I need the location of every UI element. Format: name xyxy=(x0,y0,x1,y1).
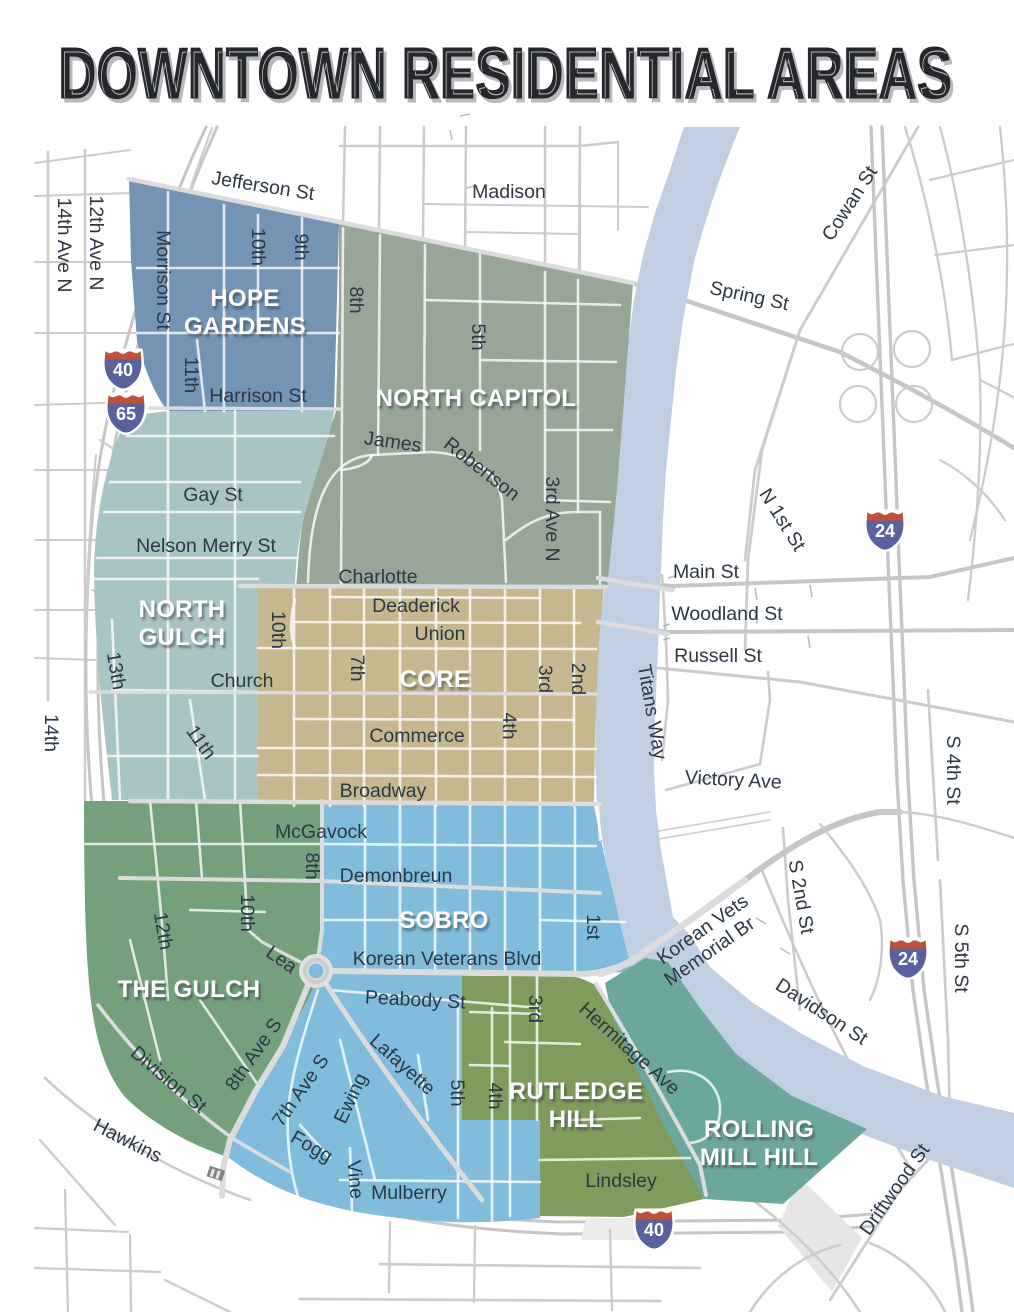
svg-text:DOWNTOWN RESIDENTIAL AREAS: DOWNTOWN RESIDENTIAL AREAS xyxy=(58,34,952,114)
svg-text:Church: Church xyxy=(211,670,274,692)
svg-text:CORE: CORE xyxy=(400,666,471,693)
svg-text:RUTLEDGE: RUTLEDGE xyxy=(509,1078,643,1105)
svg-text:5th: 5th xyxy=(467,323,489,350)
svg-text:Nelson Merry St: Nelson Merry St xyxy=(136,535,276,557)
svg-text:4th: 4th xyxy=(498,712,520,739)
svg-text:4th: 4th xyxy=(484,1082,506,1109)
svg-text:8th: 8th xyxy=(345,286,367,313)
svg-text:Main St: Main St xyxy=(673,561,740,583)
svg-text:10th: 10th xyxy=(236,894,258,932)
svg-text:3rd: 3rd xyxy=(524,995,546,1023)
svg-text:9th: 9th xyxy=(290,233,312,260)
svg-text:2nd: 2nd xyxy=(567,663,589,696)
svg-text:Charlotte: Charlotte xyxy=(338,566,417,588)
svg-text:Demonbreun: Demonbreun xyxy=(340,865,453,887)
svg-text:HILL: HILL xyxy=(549,1106,604,1133)
svg-text:5th: 5th xyxy=(446,1079,468,1106)
svg-text:Harrison St: Harrison St xyxy=(209,385,307,407)
svg-text:Madison: Madison xyxy=(472,181,546,203)
svg-text:Deaderick: Deaderick xyxy=(372,595,460,617)
svg-text:24: 24 xyxy=(898,949,918,969)
svg-text:GARDENS: GARDENS xyxy=(184,313,306,340)
svg-text:40: 40 xyxy=(113,360,133,380)
svg-text:7th: 7th xyxy=(346,654,368,681)
svg-text:12th Ave N: 12th Ave N xyxy=(85,195,107,290)
svg-text:THE GULCH: THE GULCH xyxy=(118,976,261,1003)
svg-text:3rd: 3rd xyxy=(534,665,556,693)
svg-text:NORTH: NORTH xyxy=(139,596,226,623)
svg-text:Vine: Vine xyxy=(342,1159,367,1199)
svg-text:Korean Veterans Blvd: Korean Veterans Blvd xyxy=(353,948,542,970)
svg-text:GULCH: GULCH xyxy=(139,624,226,651)
svg-text:Gay St: Gay St xyxy=(183,484,243,506)
svg-text:ROLLING: ROLLING xyxy=(704,1116,814,1143)
svg-text:Woodland St: Woodland St xyxy=(671,603,783,625)
svg-text:HOPE: HOPE xyxy=(210,285,279,312)
svg-text:S 5th St: S 5th St xyxy=(950,923,972,993)
svg-text:Russell St: Russell St xyxy=(674,645,762,667)
svg-text:MILL HILL: MILL HILL xyxy=(700,1144,818,1171)
svg-text:40: 40 xyxy=(644,1220,664,1240)
svg-text:S 4th St: S 4th St xyxy=(942,735,964,805)
svg-text:3rd Ave N: 3rd Ave N xyxy=(541,476,563,561)
svg-text:1st: 1st xyxy=(582,914,604,941)
svg-text:8th: 8th xyxy=(301,852,323,879)
svg-text:24: 24 xyxy=(875,521,895,541)
svg-text:10th: 10th xyxy=(267,611,289,649)
svg-text:65: 65 xyxy=(116,404,136,424)
svg-text:McGavock: McGavock xyxy=(275,821,367,843)
svg-text:Mulberry: Mulberry xyxy=(371,1182,447,1204)
svg-text:SOBRO: SOBRO xyxy=(399,907,489,934)
svg-text:Union: Union xyxy=(415,623,466,645)
svg-text:14th: 14th xyxy=(40,714,62,752)
svg-text:Morrison St: Morrison St xyxy=(152,230,174,330)
svg-text:10th: 10th xyxy=(247,228,269,266)
svg-text:14th Ave N: 14th Ave N xyxy=(53,197,75,292)
svg-text:Commerce: Commerce xyxy=(369,725,464,747)
svg-text:NORTH CAPITOL: NORTH CAPITOL xyxy=(376,385,577,412)
svg-text:Lindsley: Lindsley xyxy=(585,1170,657,1192)
svg-text:11th: 11th xyxy=(180,357,202,394)
svg-text:Broadway: Broadway xyxy=(340,780,427,802)
